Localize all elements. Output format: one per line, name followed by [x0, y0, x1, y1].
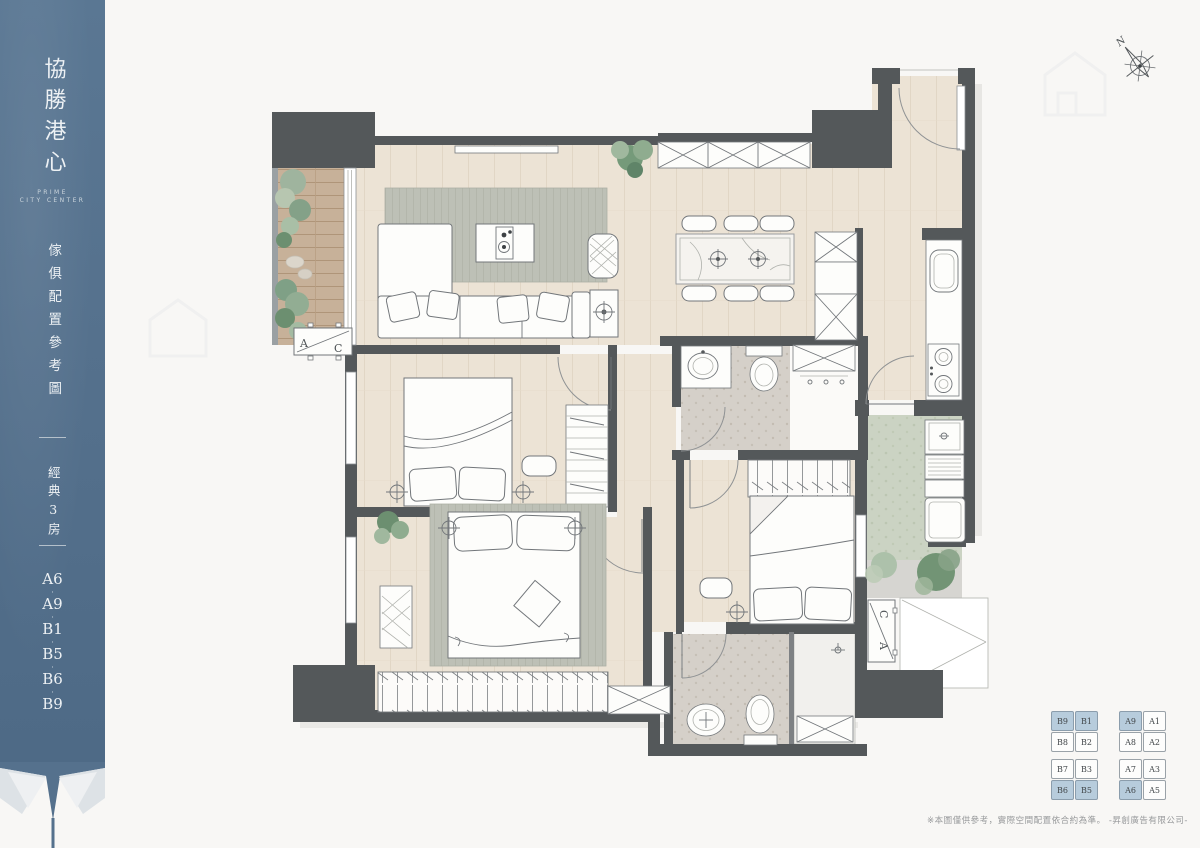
- ac-top-label-c: C: [334, 342, 342, 355]
- unit-separator: ·: [51, 665, 54, 670]
- keyplan-unit-b5: B5: [1075, 780, 1098, 800]
- keyplan-building-b: B9 B1 B8 B2 B7 B3 B6 B5: [1051, 711, 1098, 800]
- stove: [928, 344, 959, 396]
- keyplan-building-a: A9 A1 A8 A2 A7 A3 A6 A5: [1119, 711, 1166, 800]
- utility-sink: [925, 420, 964, 454]
- stool-2: [700, 578, 732, 598]
- keyplan-unit-a6: A6: [1119, 780, 1142, 800]
- plan-category: 經典3房: [0, 466, 105, 541]
- floor-plan: C A: [0, 0, 1200, 848]
- brand-title: 協勝港心: [0, 57, 105, 181]
- keyplan-unit-a5: A5: [1143, 780, 1166, 800]
- side-table-lamp: [590, 290, 618, 337]
- stool-1: [522, 456, 556, 476]
- tv: [455, 146, 558, 153]
- keyplan-unit-b7: B7: [1051, 759, 1074, 779]
- keyplan-unit-a9: A9: [1119, 711, 1142, 731]
- keyplan-unit-b6: B6: [1051, 780, 1074, 800]
- unit-separator: ·: [51, 615, 54, 620]
- compass: N: [1104, 27, 1162, 87]
- bath2-cabinet: [797, 716, 853, 742]
- bed-1: [404, 378, 512, 506]
- kitchen-cabinet: [925, 480, 964, 497]
- bed-3: [448, 512, 580, 658]
- unit-item: B1: [42, 622, 63, 637]
- disclaimer-text: ※本圖僅供參考，實際空間配置依合約為準。 -昇創廣告有限公司-: [868, 814, 1188, 826]
- keyplan-unit-a8: A8: [1119, 732, 1142, 752]
- storage-column: [815, 232, 857, 340]
- bed-2: [750, 496, 854, 624]
- keyplan: B9 B1 B8 B2 B7 B3 B6 B5 A9 A1 A8 A2 A7 A…: [1051, 711, 1166, 800]
- pedestal-sink-2: [687, 704, 725, 736]
- divider: [39, 545, 66, 546]
- hall-closet-strip: [658, 142, 810, 168]
- ac-right-label-c: C: [877, 610, 890, 618]
- drying-rack: [925, 455, 964, 479]
- pouf: [588, 234, 618, 278]
- ac-unit-top: A C: [294, 323, 352, 360]
- keyplan-unit-b8: B8: [1051, 732, 1074, 752]
- keyplan-unit-a2: A2: [1143, 732, 1166, 752]
- unit-item: A6: [42, 572, 62, 587]
- unit-list: A6 · A9 · B1 · B5 · B6 · B9: [0, 572, 105, 712]
- wardrobe-2: [748, 460, 850, 497]
- keyplan-unit-b2: B2: [1075, 732, 1098, 752]
- bed3-cabinet: [608, 686, 670, 714]
- plan-caption: 傢俱配置參考圖: [0, 243, 105, 404]
- keyplan-unit-a7: A7: [1119, 759, 1142, 779]
- keyplan-unit-b3: B3: [1075, 759, 1098, 779]
- keyplan-unit-a3: A3: [1143, 759, 1166, 779]
- ac-unit-right: C A: [868, 600, 897, 662]
- unit-separator: ·: [51, 590, 54, 595]
- dining-area: [676, 216, 794, 301]
- keyplan-unit-a1: A1: [1143, 711, 1166, 731]
- compass-n-label: N: [1114, 34, 1129, 49]
- unit-item: B5: [42, 647, 63, 662]
- unit-item: A9: [42, 597, 62, 612]
- keyplan-unit-b1: B1: [1075, 711, 1098, 731]
- dresser: [380, 586, 412, 648]
- washer: [925, 498, 965, 542]
- sidebar: 協勝港心 PRIME CITY CENTER 傢俱配置參考圖 經典3房 A6 ·…: [0, 0, 105, 848]
- ac-right-label-a: A: [877, 641, 890, 651]
- unit-separator: ·: [51, 690, 54, 695]
- vanity-sink-1: [681, 346, 731, 388]
- coffee-table: [476, 224, 534, 262]
- wardrobe-3: [378, 672, 608, 712]
- unit-separator: ·: [51, 640, 54, 645]
- unit-item: B6: [42, 672, 63, 687]
- dining-table: [676, 234, 794, 284]
- ac-top-label-a: A: [299, 337, 309, 350]
- brand-subtitle: PRIME CITY CENTER: [0, 189, 105, 205]
- divider: [39, 437, 66, 438]
- kitchen: [925, 240, 965, 542]
- sidebar-ribbon-tip: [0, 762, 105, 848]
- utility-wall-block: [855, 670, 943, 718]
- shelf-unit: [566, 405, 608, 507]
- keyplan-unit-b9: B9: [1051, 711, 1074, 731]
- unit-item: B9: [42, 697, 63, 712]
